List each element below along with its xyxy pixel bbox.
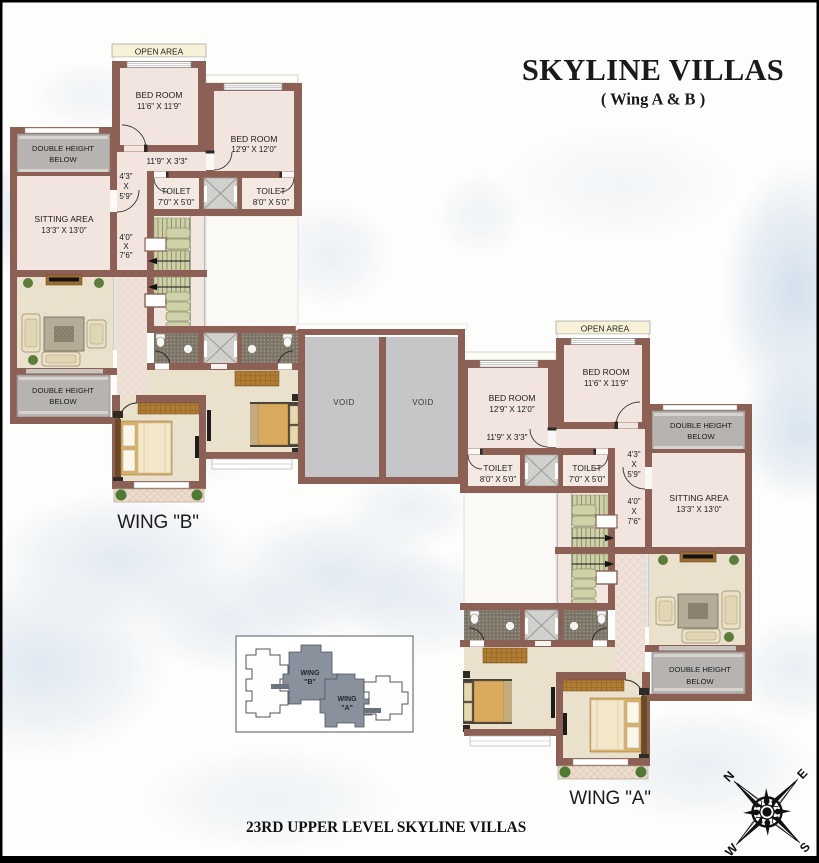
svg-text:VOID: VOID <box>333 398 355 407</box>
svg-text:12'9" X 12'0": 12'9" X 12'0" <box>231 145 276 154</box>
svg-text:TOILET: TOILET <box>572 463 601 473</box>
svg-text:TOILET: TOILET <box>256 186 285 196</box>
svg-text:SKYLINE VILLAS: SKYLINE VILLAS <box>522 53 784 87</box>
svg-text:8'0" X 5'0": 8'0" X 5'0" <box>253 198 289 207</box>
svg-text:OPEN AREA: OPEN AREA <box>135 47 184 57</box>
svg-text:12'9" X 12'0": 12'9" X 12'0" <box>489 405 534 414</box>
svg-text:OPEN AREA: OPEN AREA <box>581 324 630 334</box>
svg-text:BELOW: BELOW <box>687 432 715 441</box>
svg-text:7'0" X 5'0": 7'0" X 5'0" <box>569 475 605 484</box>
svg-text:11'6" X 11'9": 11'6" X 11'9" <box>584 379 628 388</box>
svg-text:( Wing A & B ): ( Wing A & B ) <box>601 90 705 109</box>
svg-text:4'3": 4'3" <box>119 172 132 181</box>
svg-text:VOID: VOID <box>412 398 434 407</box>
svg-text:DOUBLE HEIGHT: DOUBLE HEIGHT <box>32 386 94 395</box>
svg-text:WING "A": WING "A" <box>569 788 651 809</box>
svg-text:SITTING AREA: SITTING AREA <box>669 493 728 503</box>
svg-text:7'6": 7'6" <box>119 251 132 260</box>
svg-text:8'0" X 5'0": 8'0" X 5'0" <box>480 475 516 484</box>
svg-text:WING: WING <box>300 670 320 677</box>
svg-text:"A": "A" <box>341 705 353 712</box>
svg-text:DOUBLE HEIGHT: DOUBLE HEIGHT <box>670 421 732 430</box>
svg-text:BED ROOM: BED ROOM <box>489 393 536 403</box>
svg-text:5'9": 5'9" <box>119 192 132 201</box>
svg-text:DOUBLE HEIGHT: DOUBLE HEIGHT <box>32 144 94 153</box>
svg-text:WING: WING <box>337 696 357 703</box>
svg-text:11'9" X 3'3": 11'9" X 3'3" <box>486 433 527 442</box>
svg-text:BELOW: BELOW <box>49 155 77 164</box>
svg-text:11'6" X 11'9": 11'6" X 11'9" <box>137 102 181 111</box>
svg-text:13'3" X 13'0": 13'3" X 13'0" <box>676 505 721 514</box>
svg-text:SITTING AREA: SITTING AREA <box>34 214 93 224</box>
svg-text:"B": "B" <box>304 679 316 686</box>
svg-text:5'9": 5'9" <box>627 470 640 479</box>
svg-text:TOILET: TOILET <box>483 463 512 473</box>
svg-text:DOUBLE HEIGHT: DOUBLE HEIGHT <box>669 665 731 674</box>
svg-text:WING "B": WING "B" <box>117 512 199 533</box>
svg-text:X: X <box>123 182 129 191</box>
svg-text:X: X <box>123 242 129 251</box>
svg-text:4'0": 4'0" <box>627 497 640 506</box>
svg-text:BELOW: BELOW <box>686 677 714 686</box>
svg-text:7'0" X 5'0": 7'0" X 5'0" <box>158 198 194 207</box>
svg-text:4'0": 4'0" <box>119 233 132 242</box>
svg-text:BED ROOM: BED ROOM <box>583 367 630 377</box>
svg-text:TOILET: TOILET <box>161 186 190 196</box>
svg-text:X: X <box>631 460 637 469</box>
svg-text:13'3" X 13'0": 13'3" X 13'0" <box>41 226 86 235</box>
svg-text:4'3": 4'3" <box>627 450 640 459</box>
svg-text:23RD UPPER LEVEL SKYLINE VILLA: 23RD UPPER LEVEL SKYLINE VILLAS <box>246 819 526 836</box>
svg-text:BED ROOM: BED ROOM <box>136 90 183 100</box>
svg-text:11'9" X 3'3": 11'9" X 3'3" <box>146 157 187 166</box>
svg-text:X: X <box>631 507 637 516</box>
svg-text:BED ROOM: BED ROOM <box>231 134 278 144</box>
svg-text:7'6": 7'6" <box>627 517 640 526</box>
svg-text:BELOW: BELOW <box>49 397 77 406</box>
